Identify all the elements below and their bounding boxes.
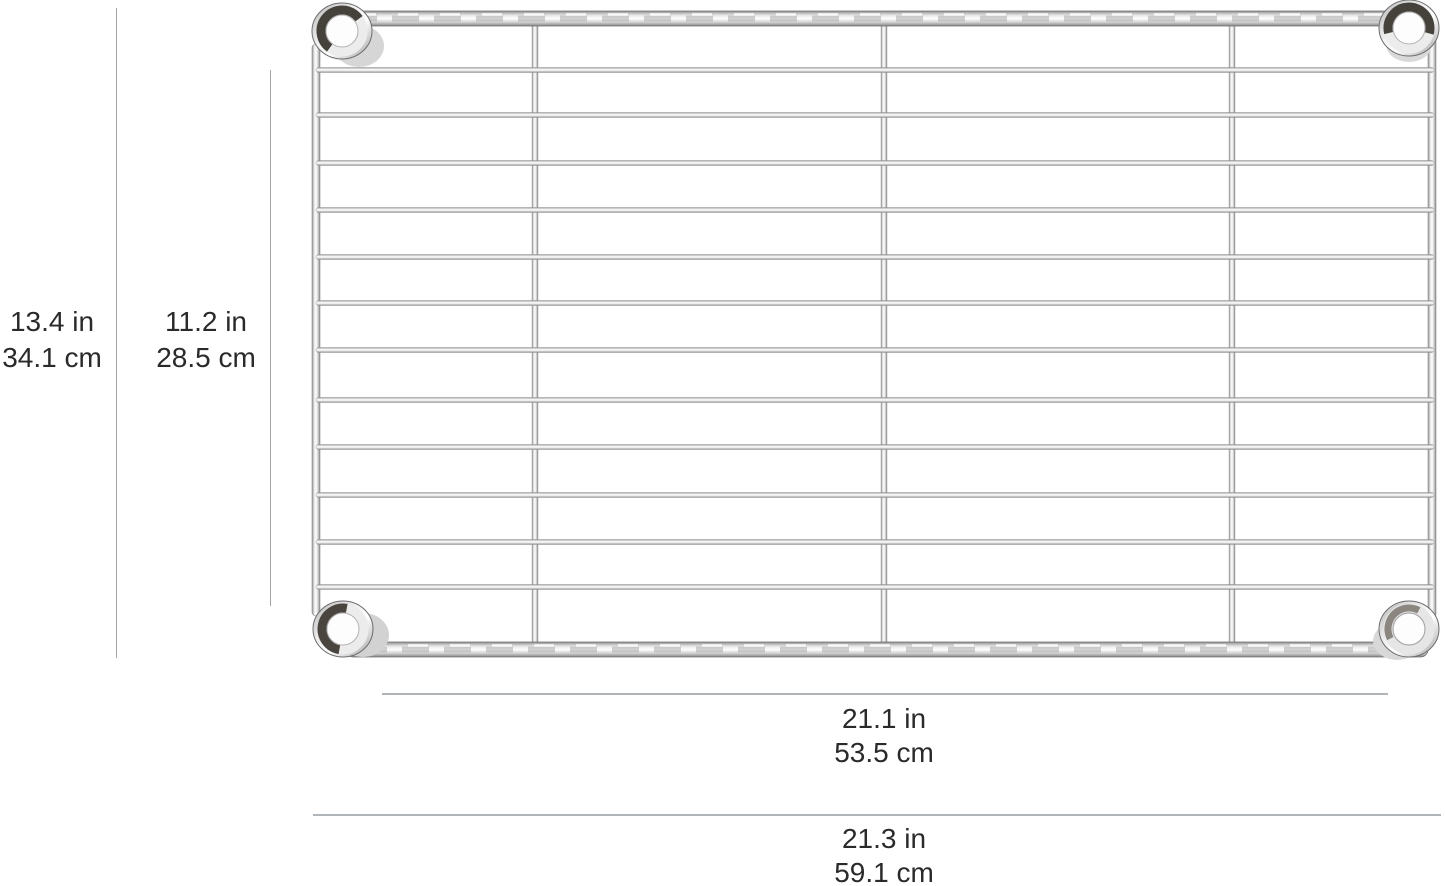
dimension-value-cm: 53.5 cm: [784, 736, 984, 770]
dimension-label-width-inner: 21.1 in 53.5 cm: [784, 702, 984, 770]
dimension-value-cm: 34.1 cm: [0, 340, 110, 376]
wire-shelf-image: [0, 0, 1445, 886]
dimension-line-width-outer: [313, 814, 1441, 816]
dimension-value-inches: 11.2 in: [148, 304, 264, 340]
corner-collar-bottom-left: [313, 601, 389, 657]
dimension-value-cm: 59.1 cm: [784, 856, 984, 886]
dimension-diagram: 13.4 in 34.1 cm 11.2 in 28.5 cm 21.1 in …: [0, 0, 1445, 886]
corner-collar-bottom-right: [1373, 601, 1439, 660]
dimension-value-inches: 21.3 in: [784, 822, 984, 856]
dimension-line-width-inner: [382, 693, 1388, 695]
dimension-label-width-outer: 21.3 in 59.1 cm: [784, 822, 984, 886]
shelf-side-rods: [312, 38, 1436, 618]
dimension-value-inches: 13.4 in: [0, 304, 110, 340]
dimension-value-inches: 21.1 in: [784, 702, 984, 736]
shelf-grid-wires: [316, 68, 1434, 590]
dimension-value-cm: 28.5 cm: [148, 340, 264, 376]
dimension-label-depth-inner: 11.2 in 28.5 cm: [148, 304, 264, 376]
shelf-top-rail: [333, 11, 1427, 26]
dimension-label-depth-outer: 13.4 in 34.1 cm: [0, 304, 110, 376]
dimension-line-depth-inner: [270, 70, 271, 606]
shelf-bottom-rail: [346, 642, 1428, 657]
dimension-line-depth-outer: [116, 8, 117, 658]
